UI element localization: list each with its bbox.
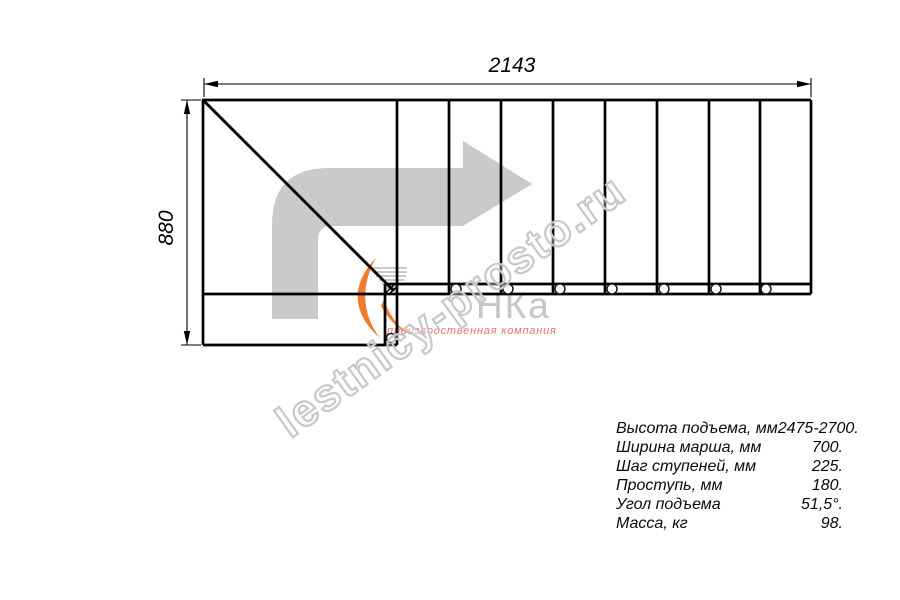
spec-value: 51,5°.: [801, 495, 843, 514]
left-dimension-label: 880: [155, 188, 179, 268]
spec-row: Проступь, мм 180.: [616, 476, 843, 495]
spec-value: 98.: [821, 514, 843, 533]
spec-value: 180.: [812, 476, 843, 495]
spec-row: Высота подъема, мм 2475-2700.: [616, 419, 843, 438]
site-watermark: lestnicy-prosto.ru: [238, 142, 664, 470]
logo-stripes: [370, 268, 407, 288]
spec-label: Шаг ступеней, мм: [616, 457, 756, 476]
spec-label: Угол подъема: [616, 495, 721, 514]
spec-row: Угол подъема 51,5°.: [616, 495, 843, 514]
stair-plan-page: НКа производственная компания: [0, 0, 900, 600]
spec-label: Масса, кг: [616, 514, 688, 533]
spec-value: 225.: [812, 457, 843, 476]
spec-label: Ширина марша, мм: [616, 438, 761, 457]
corner-hatch-square: [386, 285, 397, 295]
spec-row: Масса, кг 98.: [616, 514, 843, 533]
spec-row: Шаг ступеней, мм 225.: [616, 457, 843, 476]
specs-table: Высота подъема, мм 2475-2700. Ширина мар…: [616, 419, 843, 533]
top-dimension-label: 2143: [462, 54, 562, 78]
spec-label: Проступь, мм: [616, 476, 722, 495]
spec-row: Ширина марша, мм 700.: [616, 438, 843, 457]
spec-value: 700.: [812, 438, 843, 457]
dimension-top: [204, 78, 811, 97]
spec-label: Высота подъема, мм: [616, 419, 778, 438]
spec-value: 2475-2700.: [778, 419, 859, 438]
winder-diagonal: [204, 101, 394, 291]
dimension-left: [181, 100, 201, 345]
